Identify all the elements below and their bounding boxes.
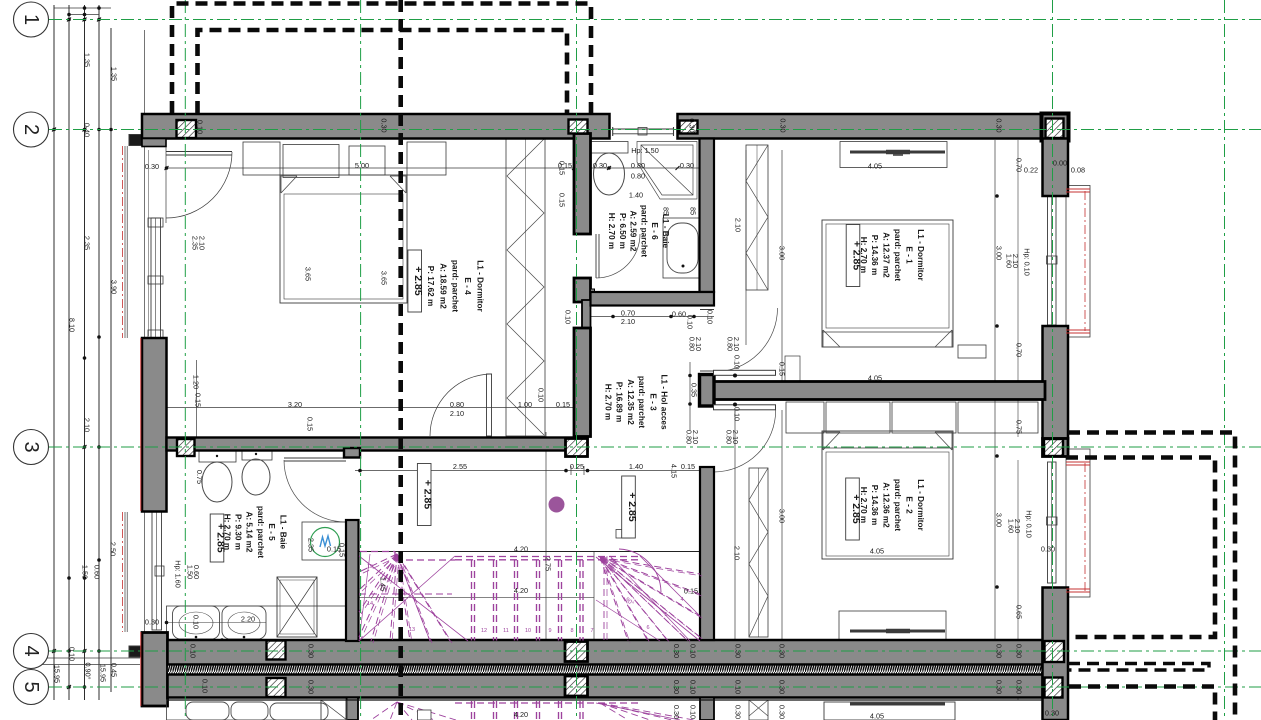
svg-text:P: 6.50 m: P: 6.50 m — [618, 213, 627, 249]
svg-text:0.75: 0.75 — [1015, 420, 1024, 434]
svg-text:0.70: 0.70 — [1015, 158, 1024, 172]
svg-text:E - 3: E - 3 — [648, 393, 657, 411]
svg-text:3.65: 3.65 — [304, 267, 313, 281]
svg-text:pard: parchet: pard: parchet — [637, 376, 646, 429]
svg-text:0.10: 0.10 — [196, 120, 205, 134]
svg-text:0.30: 0.30 — [779, 118, 788, 132]
svg-text:0.10: 0.10 — [189, 644, 198, 658]
svg-text:8.10: 8.10 — [68, 318, 77, 332]
svg-text:0.30: 0.30 — [1041, 545, 1055, 554]
svg-text:A: 12.35 m2: A: 12.35 m2 — [626, 379, 635, 425]
svg-text:pard: parchet: pard: parchet — [256, 506, 265, 559]
svg-text:0.10: 0.10 — [68, 647, 77, 661]
svg-text:0.30: 0.30 — [380, 118, 389, 132]
svg-text:0.65: 0.65 — [1015, 605, 1024, 619]
svg-text:L1 - Hol acces: L1 - Hol acces — [660, 374, 669, 430]
svg-text:+ 2.85: + 2.85 — [422, 480, 434, 510]
svg-text:E - 6: E - 6 — [650, 222, 659, 240]
svg-text:0.15: 0.15 — [681, 462, 695, 471]
svg-text:2.10: 2.10 — [1013, 519, 1022, 533]
svg-text:0.10: 0.10 — [732, 355, 741, 369]
svg-text:0.10: 0.10 — [537, 388, 546, 402]
svg-text:3: 3 — [20, 441, 42, 452]
svg-text:2.10: 2.10 — [83, 418, 92, 432]
svg-text:0.10: 0.10 — [689, 705, 698, 719]
svg-text:0.30: 0.30 — [995, 644, 1004, 658]
svg-text:P: 16.89 m: P: 16.89 m — [615, 382, 624, 423]
svg-text:3.90: 3.90 — [110, 280, 119, 294]
svg-text:0.30: 0.30 — [1015, 680, 1024, 694]
svg-text:0.15: 0.15 — [558, 193, 567, 207]
svg-text:11: 11 — [503, 628, 509, 634]
svg-text:4: 4 — [680, 597, 683, 603]
svg-text:0.10: 0.10 — [192, 615, 201, 629]
svg-text:pard: parchet: pard: parchet — [451, 260, 460, 313]
svg-text:L1 - Dormitor: L1 - Dormitor — [476, 260, 485, 312]
svg-text:0.30: 0.30 — [734, 705, 743, 719]
svg-text:2.20: 2.20 — [241, 615, 255, 624]
svg-text:0.30: 0.30 — [778, 644, 787, 658]
svg-text:6: 6 — [646, 625, 649, 631]
svg-text:9: 9 — [548, 628, 551, 634]
svg-text:0.10: 0.10 — [201, 679, 210, 693]
svg-text:2.10: 2.10 — [621, 317, 635, 326]
svg-text:A: 5.14 m2: A: 5.14 m2 — [245, 512, 254, 553]
svg-text:0.80: 0.80 — [631, 161, 645, 170]
svg-text:pard: parchet: pard: parchet — [893, 229, 902, 282]
svg-text:L1 - Dormitor: L1 - Dormitor — [916, 479, 925, 531]
svg-text:14: 14 — [367, 601, 373, 607]
svg-text:0.08: 0.08 — [1071, 166, 1085, 175]
svg-text:0.75: 0.75 — [195, 470, 204, 484]
svg-text:0.60: 0.60 — [93, 565, 102, 579]
svg-text:0.45: 0.45 — [110, 663, 119, 677]
svg-text:4.05: 4.05 — [870, 712, 884, 720]
svg-text:10: 10 — [525, 628, 531, 634]
svg-text:1.20: 1.20 — [192, 375, 201, 389]
svg-text:0.15: 0.15 — [778, 362, 787, 376]
svg-text:A: 2.59 m2: A: 2.59 m2 — [629, 211, 638, 252]
svg-text:0.15: 0.15 — [556, 400, 570, 409]
svg-text:2.10: 2.10 — [694, 337, 703, 351]
svg-text:15: 15 — [367, 564, 373, 570]
svg-text:L1 - Baie: L1 - Baie — [278, 515, 287, 550]
svg-text:0.60: 0.60 — [672, 310, 686, 319]
svg-text:0.30: 0.30 — [145, 162, 159, 171]
svg-text:1.35: 1.35 — [83, 53, 92, 67]
svg-text:A: 12.37 m2: A: 12.37 m2 — [882, 232, 891, 278]
svg-text:0.30: 0.30 — [680, 161, 694, 170]
svg-text:P: 14.36 m: P: 14.36 m — [870, 235, 879, 276]
svg-text:3.00: 3.00 — [778, 246, 787, 260]
svg-text:0.15: 0.15 — [194, 393, 203, 407]
svg-text:Hp: 1.50: Hp: 1.50 — [631, 146, 659, 155]
svg-text:0.10: 0.10 — [706, 310, 715, 324]
svg-text:P: 9.30 m: P: 9.30 m — [234, 514, 243, 550]
svg-text:0.60: 0.60 — [192, 565, 201, 579]
svg-text:H: 2.70 m: H: 2.70 m — [607, 213, 616, 249]
svg-text:4.20: 4.20 — [514, 545, 528, 554]
svg-text:H: 2.70 m: H: 2.70 m — [604, 384, 613, 420]
svg-text:2.10: 2.10 — [733, 546, 742, 560]
svg-text:0.10: 0.10 — [689, 644, 698, 658]
svg-text:0.30: 0.30 — [1045, 709, 1059, 718]
svg-text:4.05: 4.05 — [868, 374, 882, 383]
svg-text:3.65: 3.65 — [380, 271, 389, 285]
svg-text:+ 2.85: + 2.85 — [215, 523, 227, 553]
svg-text:3.00: 3.00 — [995, 246, 1004, 260]
svg-text:4: 4 — [20, 645, 42, 656]
svg-text:3.00: 3.00 — [995, 513, 1004, 527]
svg-text:0.00: 0.00 — [1053, 159, 1067, 168]
svg-text:5: 5 — [664, 612, 667, 618]
svg-text:2.10: 2.10 — [732, 337, 741, 351]
svg-text:0.30: 0.30 — [672, 705, 681, 719]
svg-text:0.70: 0.70 — [1015, 343, 1024, 357]
svg-text:0.30: 0.30 — [1015, 644, 1024, 658]
svg-text:0.15: 0.15 — [684, 587, 698, 596]
svg-text:0.15: 0.15 — [306, 417, 315, 431]
svg-text:2.10: 2.10 — [691, 430, 700, 444]
svg-text:1.45: 1.45 — [379, 577, 388, 591]
svg-text:0.25: 0.25 — [570, 462, 584, 471]
svg-text:3.20: 3.20 — [288, 400, 302, 409]
svg-text:0.30: 0.30 — [593, 161, 607, 170]
svg-text:0.30: 0.30 — [734, 644, 743, 658]
svg-text:0.30: 0.30 — [145, 618, 159, 627]
svg-text:E - 2: E - 2 — [904, 496, 913, 514]
svg-text:7: 7 — [590, 628, 593, 634]
svg-text:1.50: 1.50 — [81, 565, 90, 579]
svg-text:1.00: 1.00 — [518, 400, 532, 409]
svg-text:85: 85 — [662, 207, 671, 215]
svg-text:0.30: 0.30 — [995, 118, 1004, 132]
svg-text:2.10: 2.10 — [731, 430, 740, 444]
svg-text:E - 1: E - 1 — [904, 246, 913, 264]
svg-text:0.22: 0.22 — [1024, 166, 1038, 175]
svg-text:0.10: 0.10 — [689, 680, 698, 694]
svg-text:0.15: 0.15 — [558, 161, 567, 175]
svg-text:+ 2.85: + 2.85 — [412, 266, 424, 296]
svg-text:0.30: 0.30 — [778, 705, 787, 719]
svg-text:L1 - Dormitor: L1 - Dormitor — [916, 229, 925, 281]
svg-text:4.20: 4.20 — [514, 710, 528, 719]
svg-text:1.35: 1.35 — [110, 67, 119, 81]
svg-text:1.40: 1.40 — [629, 462, 643, 471]
svg-text:A: 12.36 m2: A: 12.36 m2 — [882, 482, 891, 528]
svg-text:2.35: 2.35 — [83, 236, 92, 250]
svg-text:3.00: 3.00 — [778, 509, 787, 523]
svg-text:4.15: 4.15 — [670, 464, 679, 478]
svg-text:L1 - Baie: L1 - Baie — [661, 214, 670, 249]
svg-text:15.95: 15.95 — [99, 664, 108, 682]
svg-text:2.10: 2.10 — [198, 236, 207, 250]
svg-text:2.10: 2.10 — [450, 409, 464, 418]
svg-text:13: 13 — [409, 627, 415, 633]
svg-text:0.15: 0.15 — [338, 543, 347, 557]
svg-text:15.95: 15.95 — [53, 665, 62, 683]
svg-text:+ 2.85: + 2.85 — [850, 494, 862, 524]
svg-text:A: 18.59 m2: A: 18.59 m2 — [438, 263, 447, 309]
svg-text:0.80: 0.80 — [631, 172, 645, 181]
svg-text:2: 2 — [20, 124, 42, 135]
svg-text:pard: parchet: pard: parchet — [893, 479, 902, 532]
svg-text:12: 12 — [481, 628, 487, 634]
svg-text:4.20: 4.20 — [514, 586, 528, 595]
svg-text:2.35: 2.35 — [307, 538, 316, 552]
svg-text:2.10: 2.10 — [1011, 254, 1020, 268]
svg-text:0.10: 0.10 — [686, 315, 695, 329]
svg-text:0.80: 0.80 — [450, 400, 464, 409]
svg-text:0.30: 0.30 — [995, 680, 1004, 694]
svg-text:5: 5 — [20, 681, 42, 692]
svg-text:Hp: 1.60: Hp: 1.60 — [174, 560, 183, 588]
svg-text:0.30: 0.30 — [672, 680, 681, 694]
svg-text:2.55: 2.55 — [453, 462, 467, 471]
svg-text:+ 2.85: + 2.85 — [626, 492, 638, 522]
svg-text:E - 4: E - 4 — [463, 277, 472, 295]
svg-text:pard: parchet: pard: parchet — [639, 205, 648, 258]
svg-text:1: 1 — [20, 14, 42, 25]
svg-text:4.05: 4.05 — [870, 547, 884, 556]
svg-text:P: 14.36 m: P: 14.36 m — [870, 485, 879, 526]
svg-text:2.10: 2.10 — [734, 218, 743, 232]
svg-text:Hp: 0.10: Hp: 0.10 — [1023, 248, 1032, 276]
svg-text:+ 2.85: + 2.85 — [851, 241, 863, 271]
svg-text:P: 17.62 m: P: 17.62 m — [426, 266, 435, 307]
svg-text:8: 8 — [570, 628, 573, 634]
svg-text:0.10: 0.10 — [734, 680, 743, 694]
svg-text:E - 5: E - 5 — [267, 523, 276, 541]
svg-text:0.10: 0.10 — [564, 310, 573, 324]
svg-text:85: 85 — [689, 207, 698, 215]
svg-text:0.30: 0.30 — [688, 118, 697, 132]
svg-text:Hp: 0.10: Hp: 0.10 — [1025, 510, 1034, 538]
svg-text:0.30: 0.30 — [672, 644, 681, 658]
svg-text:0.35: 0.35 — [690, 383, 699, 397]
svg-text:2.75: 2.75 — [544, 557, 553, 571]
svg-text:0.30: 0.30 — [307, 644, 316, 658]
svg-text:0.90°: 0.90° — [84, 662, 93, 679]
svg-text:4.05: 4.05 — [868, 162, 882, 171]
svg-text:5.00: 5.00 — [355, 161, 369, 170]
svg-text:0.10: 0.10 — [733, 407, 742, 421]
svg-text:0.30: 0.30 — [778, 680, 787, 694]
svg-text:0.30: 0.30 — [307, 680, 316, 694]
svg-text:1.40: 1.40 — [629, 191, 643, 200]
svg-text:2.50: 2.50 — [109, 542, 118, 556]
